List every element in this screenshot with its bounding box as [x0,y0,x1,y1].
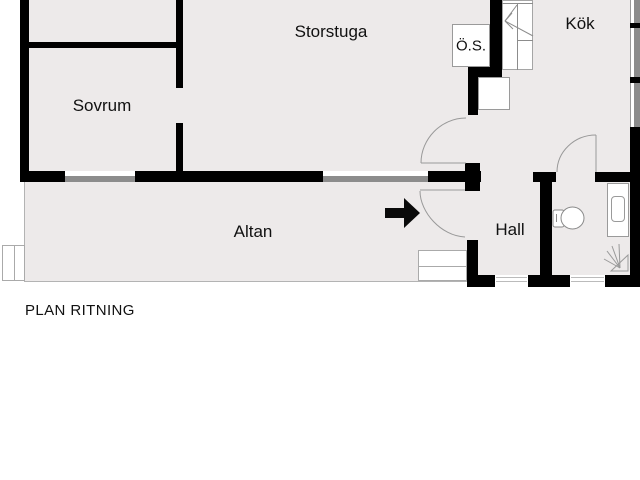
floor-plan: Storstuga Sovrum Ö.S. Kök Hall Altan PLA… [0,0,640,480]
entrance-arrow-icon [385,198,420,228]
plan-symbols-layer [0,0,640,480]
door-swing-arc-storstuga [421,118,466,163]
room-label-hall: Hall [495,220,524,240]
stairs-icon [502,3,533,70]
shower-icon [604,244,628,271]
page-title: PLAN RITNING [25,302,135,319]
door-swing-arc-bathroom [557,135,596,172]
door-swing-arc-entrance [420,190,465,237]
threshold-lines [496,278,604,282]
room-label-kok: Kök [565,14,594,34]
room-label-altan: Altan [234,222,273,242]
room-label-os: Ö.S. [456,38,486,55]
room-label-storstuga: Storstuga [295,22,368,42]
room-label-sovrum: Sovrum [73,96,132,116]
toilet-icon [553,207,584,229]
